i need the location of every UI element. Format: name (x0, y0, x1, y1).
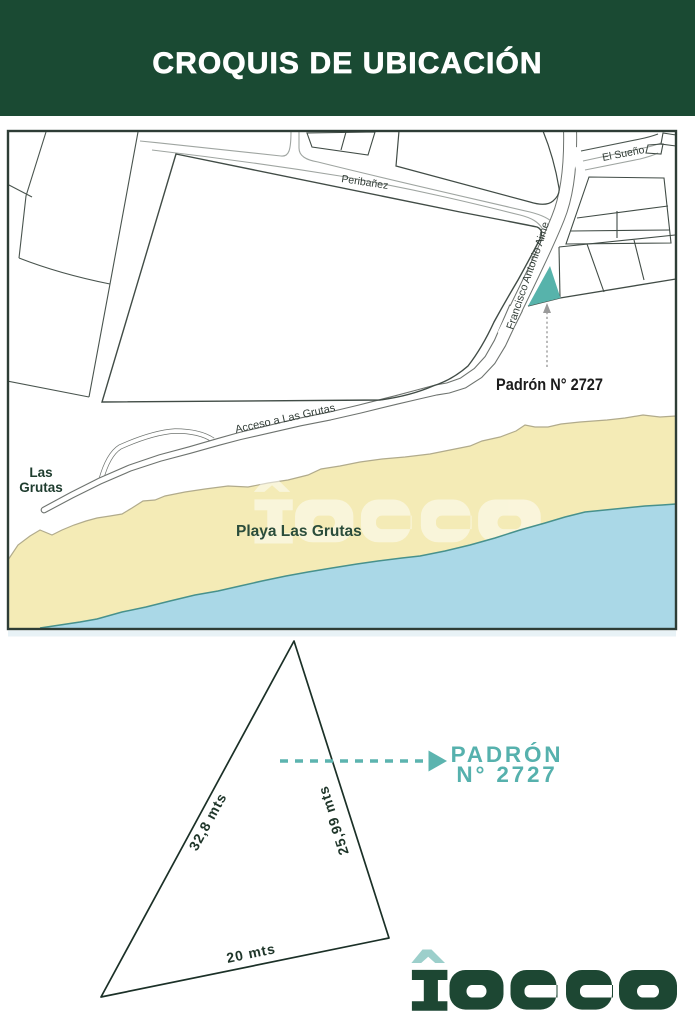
svg-text:Playa Las Grutas: Playa Las Grutas (236, 523, 362, 540)
svg-text:Grutas: Grutas (19, 480, 63, 495)
svg-text:Padrón N° 2727: Padrón N° 2727 (496, 375, 603, 394)
svg-text:N° 2727: N° 2727 (456, 762, 557, 787)
svg-text:CROQUIS DE UBICACIÓN: CROQUIS DE UBICACIÓN (152, 46, 542, 80)
svg-text:Las: Las (29, 465, 52, 480)
